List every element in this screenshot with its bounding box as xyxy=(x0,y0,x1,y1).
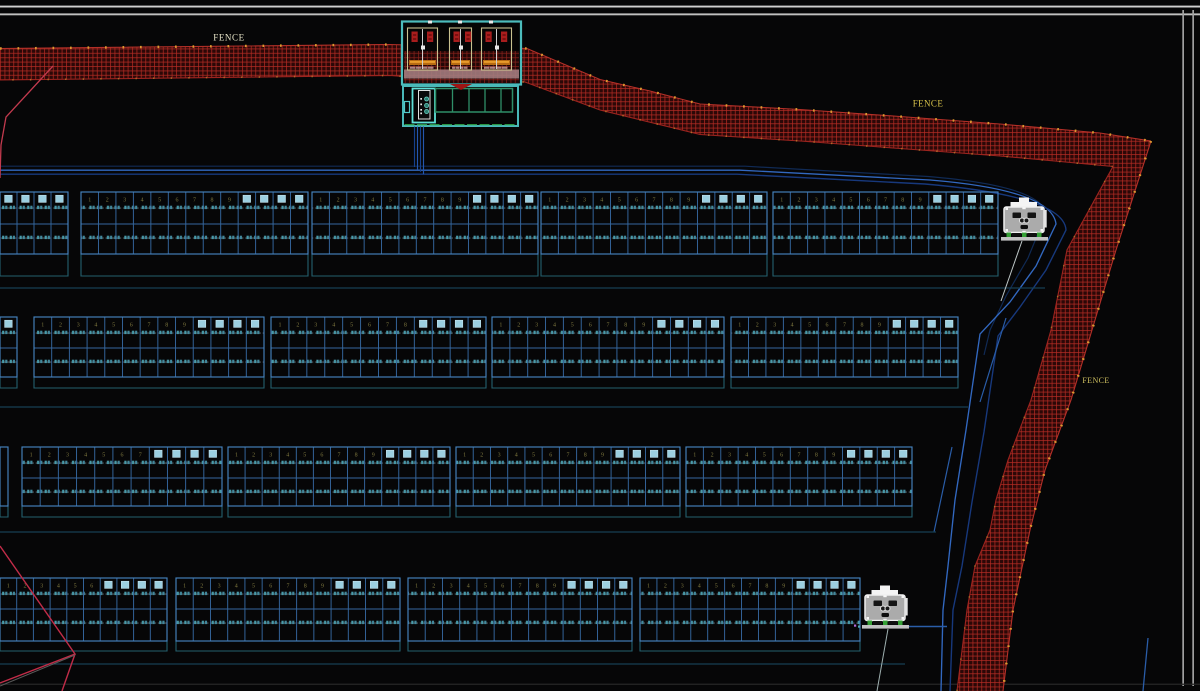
svg-text:FENCE: FENCE xyxy=(1082,376,1109,385)
svg-text:FENCE: FENCE xyxy=(913,99,944,109)
svg-text:FENCE: FENCE xyxy=(213,33,245,43)
